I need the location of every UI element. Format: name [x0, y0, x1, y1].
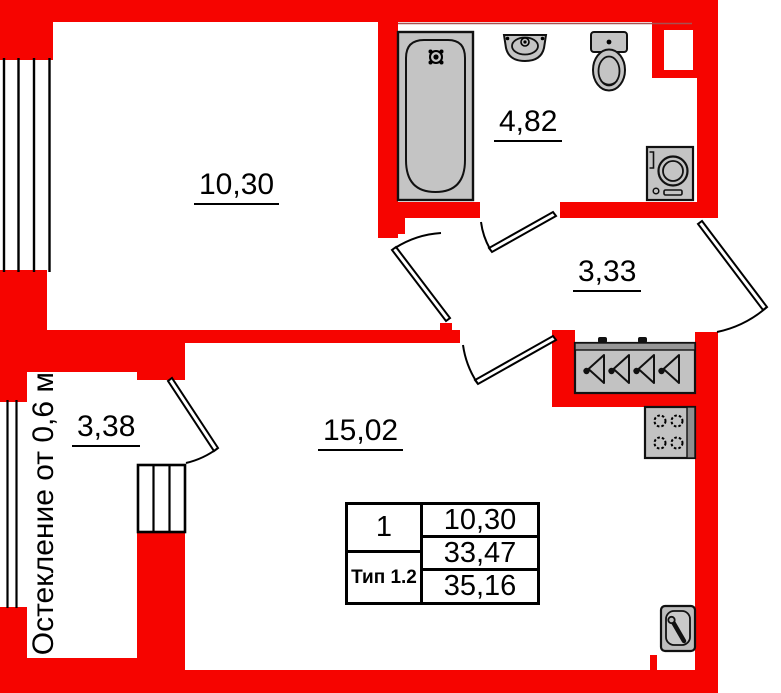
bathtub-icon — [398, 32, 473, 200]
table-rooms-count: 1 — [348, 505, 420, 550]
table-living-area: 10,30 — [423, 505, 537, 535]
hallway-area-label: 3,33 — [573, 256, 641, 292]
faucet-icon — [429, 50, 444, 65]
bedroom-area-label: 10,30 — [194, 169, 279, 205]
glazing-note-text: Остекление от 0,6 м — [27, 372, 61, 655]
bathroom-door-icon — [481, 212, 556, 252]
washing-machine-icon — [647, 147, 693, 200]
table-total-area: 35,16 — [423, 571, 537, 602]
glazing-note: Остекление от 0,6 м — [27, 372, 310, 406]
apartment-info-table: 1 Тип 1.2 10,30 33,47 35,16 — [345, 502, 540, 605]
table-type-label: Тип 1.2 — [348, 553, 420, 602]
living-room-door-icon — [463, 336, 556, 384]
living-area-label: 15,02 — [318, 415, 403, 451]
washbasin-icon — [504, 35, 546, 61]
balcony-window-icon — [138, 465, 185, 532]
table-apartment-area: 33,47 — [423, 538, 537, 568]
kitchen-sink-icon — [661, 606, 695, 651]
stove-icon — [645, 407, 695, 458]
balcony-area-label: 3,38 — [72, 411, 140, 447]
toilet-icon — [591, 32, 627, 91]
bedroom-door-icon — [392, 233, 450, 321]
entrance-door-icon — [698, 221, 767, 332]
wardrobe-hangers-icon — [575, 337, 695, 393]
bedroom-window-icon — [4, 58, 50, 272]
balcony-glazing-icon — [8, 400, 17, 608]
floor-plan: 10,30 4,82 3,33 3,38 15,02 Остекление от… — [0, 0, 781, 693]
bathroom-area-label: 4,82 — [494, 106, 562, 142]
